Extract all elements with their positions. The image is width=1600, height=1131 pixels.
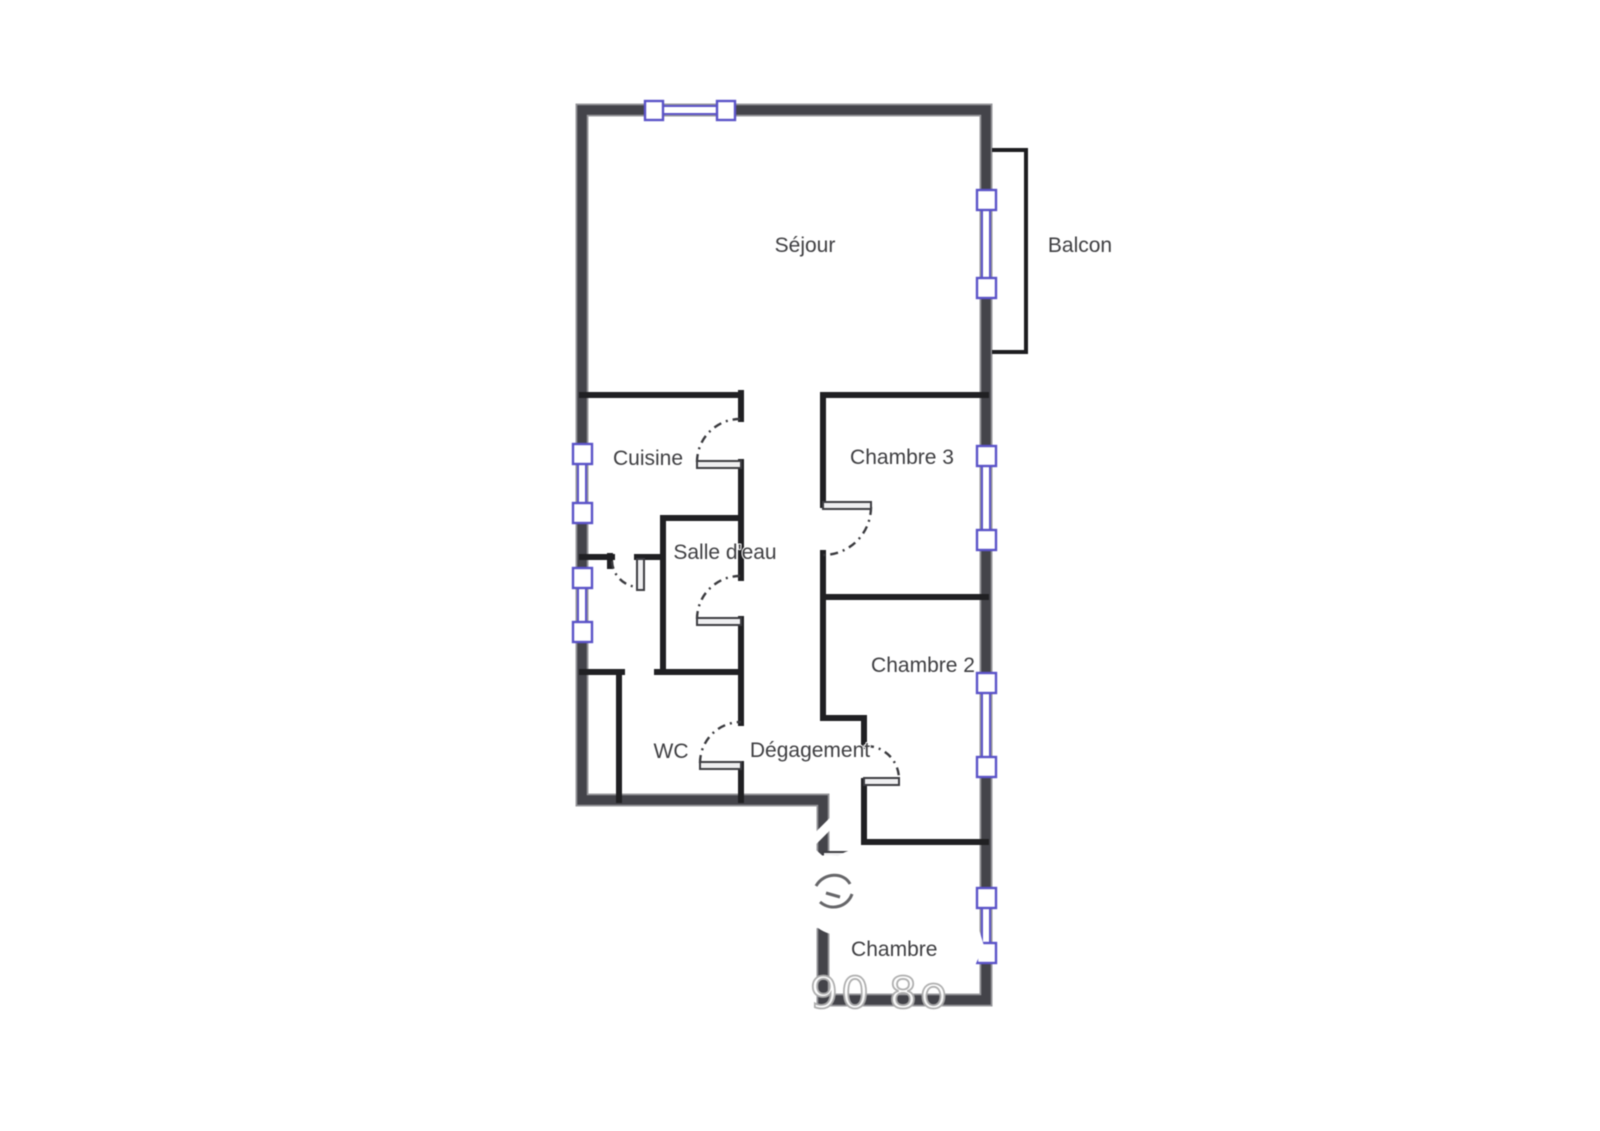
room-label-sejour: Séjour xyxy=(775,234,836,257)
wc-door-arc xyxy=(700,722,741,763)
cuisine-door-arc xyxy=(697,419,740,462)
salledeau-door-leaf xyxy=(697,618,741,625)
window-endcap xyxy=(977,190,996,210)
floorplan-svg: Séjour Balcon Cuisine Chambre 3 Salle d'… xyxy=(0,0,1600,1131)
window-stem xyxy=(578,586,586,624)
window-endcap xyxy=(977,446,996,466)
window-endcap xyxy=(573,568,592,588)
salledeau-door-arc xyxy=(697,576,740,619)
chambre3-door-leaf xyxy=(823,502,871,509)
wall-wc-closet xyxy=(582,672,741,800)
room-label-cuisine: Cuisine xyxy=(613,447,683,470)
watermark-text: 90 8o xyxy=(810,968,950,1019)
room-label-chambre3: Chambre 3 xyxy=(850,446,954,469)
window-endcap xyxy=(645,101,663,120)
window-stem xyxy=(982,208,990,280)
chambre2-door-leaf xyxy=(864,778,899,785)
window-endcap xyxy=(573,622,592,642)
window-endcap xyxy=(573,503,592,523)
window-stem xyxy=(982,464,990,532)
wall-cuisine-stub xyxy=(582,556,663,566)
room-label-wc: WC xyxy=(654,740,689,763)
room-label-chambre1: Chambre 1 xyxy=(851,938,955,961)
balcony-outline xyxy=(992,150,1026,352)
chambre3-door-arc xyxy=(823,507,871,555)
cuisine-stub-door-leaf xyxy=(637,559,644,590)
window-endcap xyxy=(977,888,996,908)
wc-door-leaf xyxy=(700,762,741,769)
window-endcap xyxy=(977,278,996,298)
window-endcap xyxy=(717,101,735,120)
window-stem xyxy=(982,691,990,759)
window-endcap xyxy=(573,444,592,464)
cuisine-door-leaf xyxy=(697,461,741,468)
window-stem xyxy=(661,106,719,114)
door-arcs xyxy=(612,419,899,893)
window-endcap xyxy=(977,757,996,777)
room-label-chambre2: Chambre 2 xyxy=(871,654,975,677)
floorplan-canvas: Séjour Balcon Cuisine Chambre 3 Salle d'… xyxy=(0,0,1600,1131)
window-endcap xyxy=(977,673,996,693)
window-stem xyxy=(982,906,990,945)
window-endcap xyxy=(977,530,996,550)
window-stem xyxy=(578,462,586,505)
room-label-degagement: Dégagement xyxy=(750,739,870,762)
watermark-blob xyxy=(786,849,892,935)
chambre2-door-arc xyxy=(866,746,899,779)
cuisine-stub-door-arc xyxy=(612,561,638,587)
watermark-blob-window xyxy=(942,926,984,972)
room-label-balcon: Balcon xyxy=(1048,234,1112,257)
room-label-salle-deau: Salle d'eau xyxy=(673,541,776,564)
